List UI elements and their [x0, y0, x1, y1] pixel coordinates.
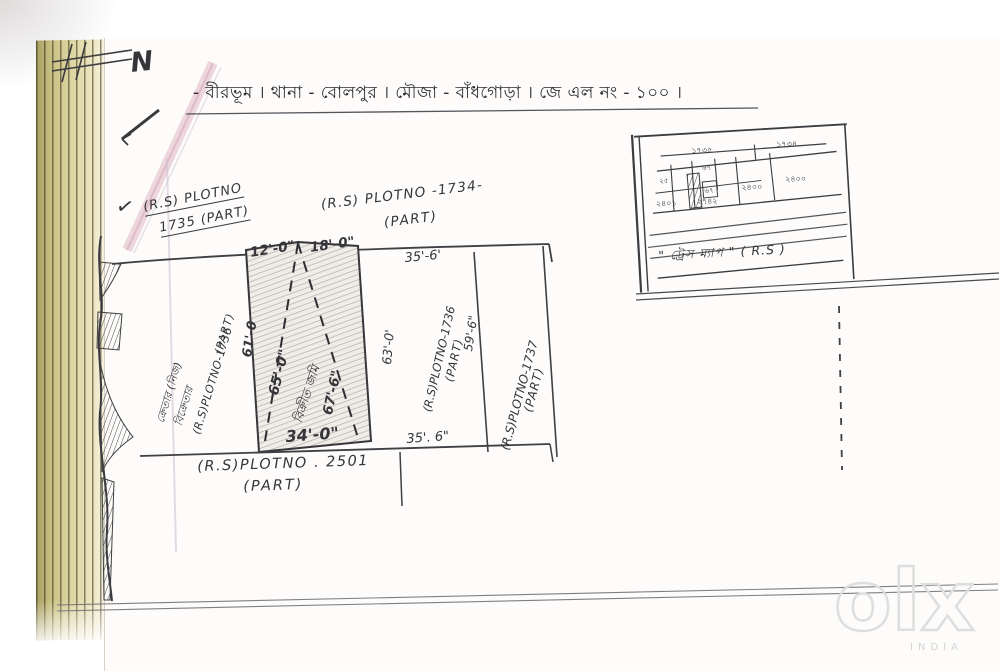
dash-dot-boundary — [839, 306, 842, 470]
inset-number: ২৫ — [659, 177, 668, 185]
north-arrow — [122, 110, 159, 145]
olx-watermark-country: INDIA — [910, 642, 963, 653]
plot-2501-label-line2: (PART) — [243, 477, 304, 495]
inset-plot-numbers: ১৭৩৫ ১৭৩৪ ২৫ ৬৭ ৬৭ ২৪০০ ২৪০০ ২৪০১ ২৭৪২ — [654, 139, 806, 208]
olx-watermark: olx INDIA — [832, 556, 1000, 666]
inset-number: ২৪০১ — [656, 199, 677, 209]
header-title: - বীরভূম । থানা - বোলপুর । মৌজা - বাঁধগো… — [193, 80, 682, 108]
inset-number: ১৭৩৪ — [776, 139, 797, 149]
inset-number: ২৭৪২ — [697, 197, 718, 207]
folded-page-corner — [127, 63, 221, 552]
inset-number: ৬৭ — [704, 187, 713, 195]
inset-bottom-double-line — [636, 273, 999, 300]
dimension-strip-bottom: 35'. 6" — [406, 429, 450, 447]
olx-watermark-text: olx — [834, 556, 975, 650]
pencil-hash-marks — [52, 42, 132, 82]
north-letter: N — [129, 46, 155, 79]
photo-of-survey-document: ১৭৩৫ ১৭৩৪ ২৫ ৬৭ ৬৭ ২৪০০ ২৪০০ ২৪০১ ২৭৪২ -… — [0, 0, 1000, 671]
dimension-right: 63'-0' — [379, 329, 397, 365]
inset-number: ২৪০০ — [741, 182, 762, 192]
inset-number: ২৪০০ — [785, 174, 806, 184]
dimension-strip-top: 35'-6' — [404, 248, 442, 266]
inset-number: ১৭৩৫ — [691, 146, 712, 156]
left-boundary-hatched — [97, 236, 133, 601]
header-underline — [186, 108, 758, 114]
dimension-bottom: 34'-0" — [285, 423, 339, 446]
inset-number: ৬৭ — [702, 164, 711, 172]
